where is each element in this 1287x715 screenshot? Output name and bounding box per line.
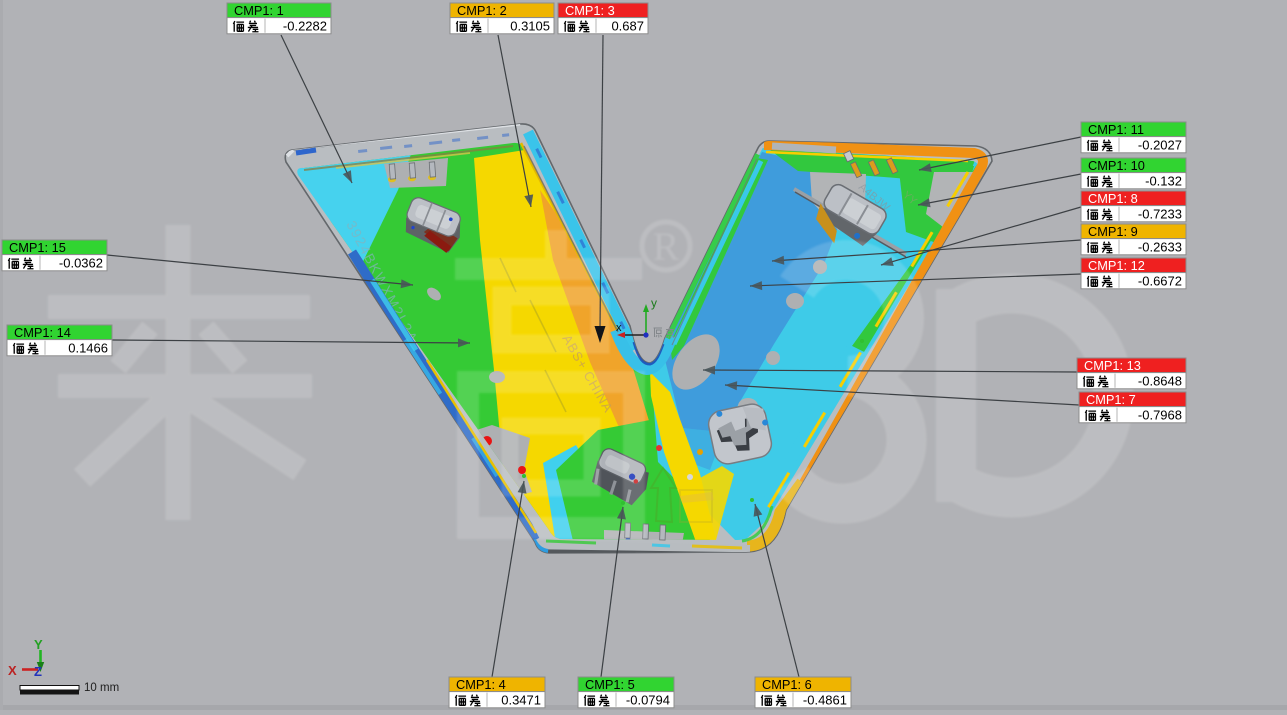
svg-text:CMP1: 7: CMP1: 7 [1086, 392, 1136, 407]
svg-text:-0.0794: -0.0794 [626, 693, 670, 708]
svg-text:CMP1: 9: CMP1: 9 [1088, 224, 1138, 239]
svg-text:CMP1: 3: CMP1: 3 [565, 3, 615, 18]
svg-text:X: X [8, 663, 17, 678]
svg-text:-0.4861: -0.4861 [803, 693, 847, 708]
svg-text:CMP1: 14: CMP1: 14 [14, 325, 71, 340]
svg-text:CMP1: 5: CMP1: 5 [585, 677, 635, 692]
svg-text:-0.2282: -0.2282 [283, 19, 327, 34]
svg-text:CMP1: 4: CMP1: 4 [456, 677, 506, 692]
svg-text:-0.0362: -0.0362 [59, 256, 103, 271]
svg-text:Z: Z [34, 664, 42, 679]
svg-text:10 mm: 10 mm [84, 682, 119, 694]
svg-text:CMP1: 11: CMP1: 11 [1088, 122, 1144, 137]
svg-text:CMP1: 1: CMP1: 1 [234, 3, 284, 18]
svg-text:CMP1: 2: CMP1: 2 [457, 3, 507, 18]
svg-text:0.1466: 0.1466 [68, 341, 108, 356]
svg-text:0.687: 0.687 [611, 19, 644, 34]
svg-text:-0.8648: -0.8648 [1138, 374, 1182, 389]
svg-text:-0.7233: -0.7233 [1138, 207, 1182, 222]
svg-text:0.3105: 0.3105 [510, 19, 550, 34]
svg-text:y: y [651, 296, 657, 310]
svg-text:-0.132: -0.132 [1145, 174, 1182, 189]
svg-text:R: R [653, 224, 680, 269]
svg-text:CMP1: 10: CMP1: 10 [1088, 158, 1145, 173]
svg-text:CMP1: 6: CMP1: 6 [762, 677, 812, 692]
svg-text:CMP1: 13: CMP1: 13 [1084, 358, 1141, 373]
svg-text:CMP1: 8: CMP1: 8 [1088, 191, 1138, 206]
svg-text:CMP1: 15: CMP1: 15 [9, 240, 66, 255]
svg-text:-0.2027: -0.2027 [1138, 138, 1182, 153]
svg-text:Y: Y [34, 637, 43, 652]
svg-text:0.3471: 0.3471 [501, 693, 541, 708]
svg-text:x: x [616, 322, 622, 334]
svg-text:-0.6672: -0.6672 [1138, 274, 1182, 289]
svg-text:CMP1: 12: CMP1: 12 [1088, 258, 1145, 273]
svg-text:-0.2633: -0.2633 [1138, 240, 1182, 255]
svg-text:-0.7968: -0.7968 [1138, 408, 1182, 423]
